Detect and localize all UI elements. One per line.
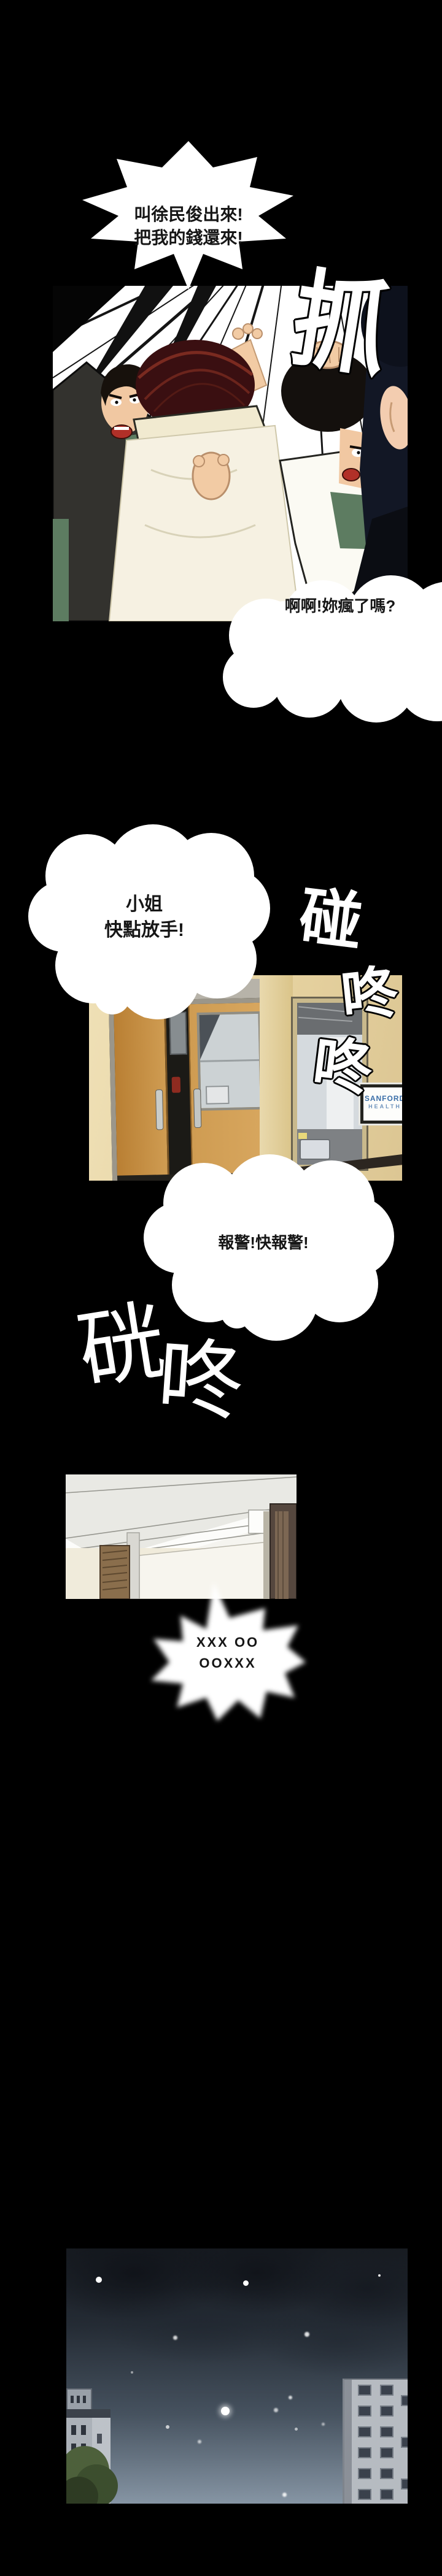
snowflake <box>96 2277 102 2283</box>
bubble-letgo-line2: 快點放手! <box>38 919 250 942</box>
right-door-glass <box>196 1011 262 1111</box>
snowflake <box>221 2407 230 2415</box>
sfx-thud-first: 硄 <box>72 1297 171 1395</box>
left-door <box>114 1005 169 1176</box>
fire-extinguisher <box>172 1077 181 1093</box>
snowflake <box>173 2336 177 2340</box>
snowflake <box>243 2280 249 2286</box>
sfx-knock-lower: 咚 <box>310 1035 376 1100</box>
door-unit <box>109 997 282 1181</box>
bubble-letgo-line1: 小姐 <box>38 893 250 916</box>
snowflake <box>304 2332 309 2337</box>
snowflake <box>378 2274 381 2277</box>
sign-line2: HEALTH <box>363 1103 402 1110</box>
sign-line1: SANFORD <box>363 1095 402 1103</box>
speech-bubble-muffled: XXX OO OOXXX <box>145 1582 311 1725</box>
muffled-bubble-shape <box>145 1582 311 1725</box>
snowflake <box>282 2493 287 2497</box>
speech-bubble-letgo: 小姐 快點放手! <box>38 824 250 1022</box>
panel-ceiling <box>66 1474 297 1599</box>
snowflake <box>131 2371 133 2374</box>
speech-bubble-police: 報警!快報警! <box>152 1154 374 1330</box>
bubble-police-text: 報警!快報警! <box>152 1233 374 1253</box>
louver-door-left <box>100 1546 130 1599</box>
bed-lamp <box>298 1133 307 1139</box>
door-gap-interior <box>166 1004 192 1175</box>
comic-page: 叫徐民俊出來! 把我的錢還來! <box>0 0 442 2576</box>
panel-night-city <box>66 2248 408 2504</box>
speech-bubble-burst-demand: 叫徐民俊出來! 把我的錢還來! <box>77 137 300 291</box>
bubble-muffled-line1: XXX OO <box>145 1634 311 1651</box>
snowflake <box>274 2408 278 2412</box>
sfx-bump: 碰 <box>296 884 366 954</box>
ceiling-art <box>66 1474 297 1599</box>
speech-bubble-crazy: 啊啊!妳瘋了嗎? <box>238 574 442 705</box>
bubble-demand-line1: 叫徐民俊出來! <box>77 204 300 225</box>
snowflake <box>322 2423 325 2426</box>
bubble-demand-line2: 把我的錢還來! <box>77 227 300 248</box>
right-door-handle <box>193 1089 201 1128</box>
sfx-grab: 抓 <box>285 265 396 385</box>
bubble-crazy-text: 啊啊!妳瘋了嗎? <box>238 596 442 616</box>
snowflake <box>289 2396 292 2399</box>
wall-pillar <box>260 975 293 1181</box>
sfx-knock-upper: 咚 <box>338 964 400 1025</box>
sfx-thud-second: 咚 <box>155 1335 246 1426</box>
bubble-muffled-line2: OOXXX <box>145 1655 311 1672</box>
right-door <box>188 1003 268 1175</box>
snowflake <box>166 2425 169 2429</box>
snowflake <box>295 2428 298 2431</box>
snowflake <box>198 2440 201 2444</box>
room-equipment <box>206 1086 230 1105</box>
night-cloud <box>257 2304 408 2377</box>
left-door-handle <box>155 1089 163 1130</box>
building-right <box>343 2379 408 2504</box>
